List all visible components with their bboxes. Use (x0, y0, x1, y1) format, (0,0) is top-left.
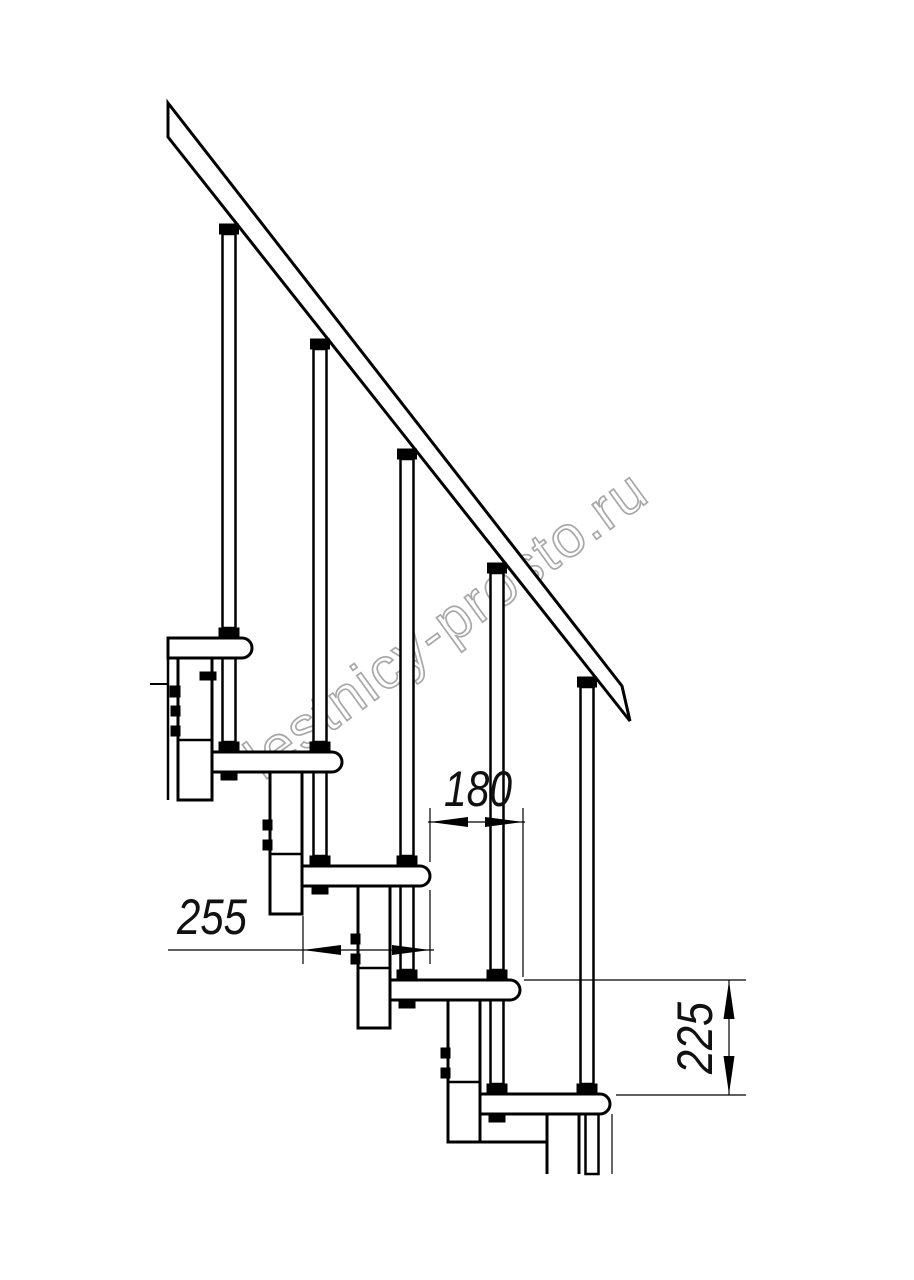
baluster-cap (311, 339, 330, 349)
bolt-tab (441, 1068, 450, 1078)
baluster-cap (398, 449, 417, 459)
arrow-down (724, 1056, 735, 1094)
dim-255-label: 255 (176, 889, 247, 945)
bolt-tab (171, 726, 180, 736)
support-plate-3 (351, 886, 390, 1028)
arrow-left (430, 817, 468, 827)
baluster-1 (219, 224, 239, 638)
dim-180-label: 180 (444, 761, 512, 817)
bolt-tab (263, 840, 272, 850)
tread-5 (480, 1094, 610, 1114)
drawing-page: lestnicy-prosto.ru (0, 0, 914, 1280)
support-plate-2 (263, 772, 302, 914)
baluster-5 (577, 677, 597, 1094)
baluster-collar (310, 742, 330, 752)
tread-bolt (200, 672, 216, 680)
post-5-clipped (586, 1114, 613, 1174)
staircase-drawing: lestnicy-prosto.ru (0, 0, 914, 1280)
bolt-tab (170, 686, 180, 697)
bolt-tab (171, 706, 180, 716)
bolt-tab (263, 820, 272, 830)
arrow-left (303, 945, 341, 955)
dim-225-label: 225 (667, 1002, 723, 1075)
support-plate-5-clipped (547, 1114, 579, 1174)
dimension-180 (428, 808, 525, 977)
watermark-text: lestnicy-prosto.ru (233, 457, 660, 792)
tread-4 (390, 980, 520, 1000)
baluster-cap (488, 563, 507, 573)
tread-3 (302, 866, 430, 886)
baluster-2 (310, 339, 330, 752)
baluster-3 (397, 449, 417, 866)
baluster-cap (220, 224, 239, 234)
bolt-tab (441, 1048, 450, 1058)
baluster-collar (577, 1084, 597, 1094)
baluster-collar (487, 970, 507, 980)
baluster-collar (397, 856, 417, 866)
arrow-up (724, 981, 735, 1019)
baluster-cap (578, 677, 597, 687)
tread-1 (168, 638, 252, 658)
baluster-collar (219, 628, 239, 638)
bolt-tab (351, 954, 360, 964)
left-edge-remnant (150, 640, 180, 800)
tread-2 (212, 752, 342, 772)
bolt-tab (351, 934, 360, 944)
